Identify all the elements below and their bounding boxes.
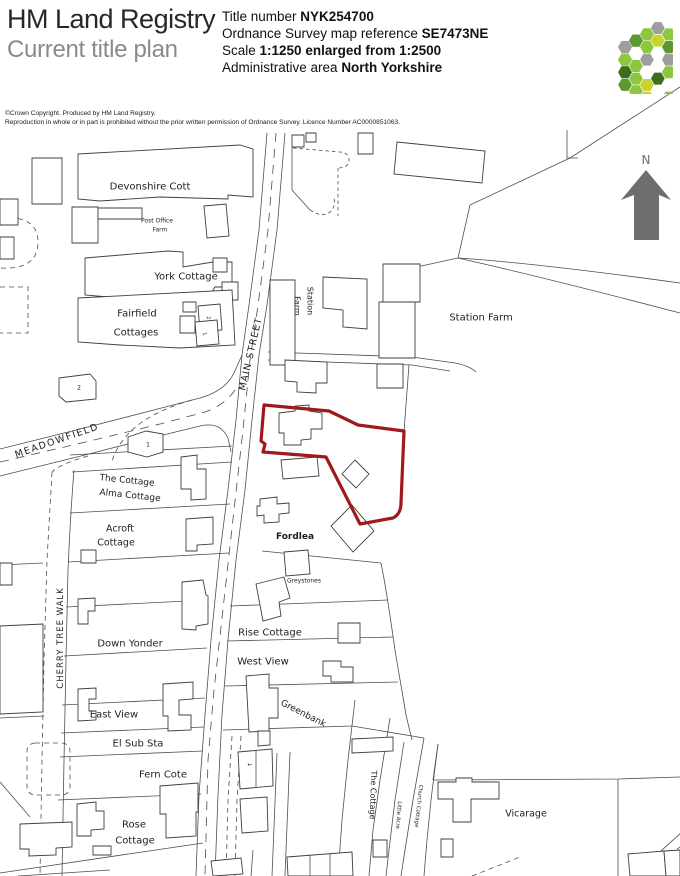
org-title: HM Land Registry bbox=[7, 4, 215, 35]
logo-hex-cell bbox=[629, 60, 643, 72]
copyright-line-1: ©Crown Copyright. Produced by HM Land Re… bbox=[5, 109, 400, 118]
title-info-block: Title number NYK254700 Ordnance Survey m… bbox=[222, 8, 488, 76]
meadowfield-north-edge bbox=[0, 355, 242, 449]
logo-hex-cell bbox=[618, 41, 632, 53]
logo-hex-cell bbox=[629, 73, 643, 85]
admin-area-value: North Yorkshire bbox=[341, 60, 442, 75]
logo-hex-cell bbox=[618, 66, 632, 78]
logo-hex-cell bbox=[662, 92, 673, 94]
hmlr-logo-icon bbox=[578, 2, 673, 94]
logo-hex-cell bbox=[662, 28, 673, 40]
copyright-line-2: Reproduction in whole or in part is proh… bbox=[5, 118, 400, 127]
meadowfield-centerline bbox=[0, 385, 238, 462]
header: HM Land Registry Current title plan Titl… bbox=[0, 0, 680, 110]
os-map-ref-row: Ordnance Survey map reference SE7473NE bbox=[222, 25, 488, 42]
logo-hex-cell bbox=[651, 22, 665, 34]
logo-hex-cell bbox=[629, 85, 643, 94]
title-number-value: NYK254700 bbox=[300, 9, 374, 24]
logo-hex-cell bbox=[618, 54, 632, 66]
admin-area-row: Administrative area North Yorkshire bbox=[222, 59, 488, 76]
buildings-layer bbox=[0, 133, 680, 876]
logo-hex-cell bbox=[640, 54, 654, 66]
cherry-tree-walk-east-edge bbox=[62, 470, 74, 876]
document-type: Current title plan bbox=[7, 36, 178, 64]
scale-value: 1:1250 enlarged from 1:2500 bbox=[260, 43, 442, 58]
logo-hex-cell bbox=[629, 35, 643, 47]
roads-layer bbox=[0, 133, 476, 876]
logo-hex-cell bbox=[640, 79, 654, 91]
logo-hex-cell bbox=[640, 28, 654, 40]
logo-hex-cell bbox=[640, 41, 654, 53]
logo-hex-cell bbox=[662, 66, 673, 78]
title-number-row: Title number NYK254700 bbox=[222, 8, 488, 25]
os-map-ref-value: SE7473NE bbox=[422, 26, 489, 41]
logo-hex-cell bbox=[651, 73, 665, 85]
logo-hex-cell bbox=[651, 35, 665, 47]
logo-hex-cell bbox=[662, 41, 673, 53]
logo-hex-cell bbox=[618, 79, 632, 91]
little-acre-strip bbox=[386, 742, 404, 876]
title-plan-map bbox=[0, 0, 680, 876]
logo-hex-cell bbox=[662, 54, 673, 66]
copyright-notice: ©Crown Copyright. Produced by HM Land Re… bbox=[5, 109, 400, 127]
church-cottage-strip bbox=[401, 738, 424, 876]
north-arrow-icon bbox=[621, 170, 671, 240]
scale-row: Scale 1:1250 enlarged from 1:2500 bbox=[222, 42, 488, 59]
